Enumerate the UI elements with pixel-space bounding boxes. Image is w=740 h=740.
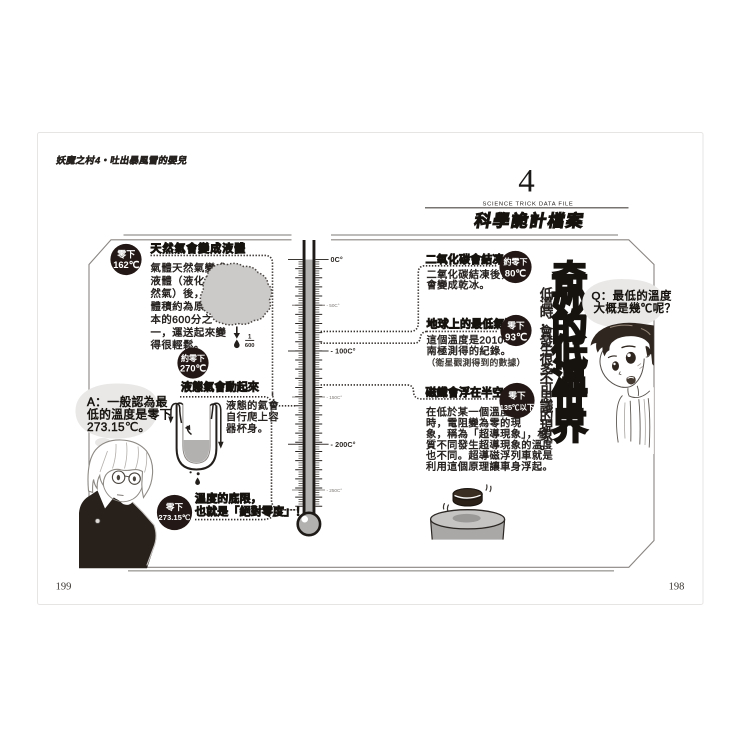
svg-text:在低於某一個溫度: 在低於某一個溫度 (426, 405, 511, 418)
svg-text:SCIENCE TRICK DATA FILE: SCIENCE TRICK DATA FILE (483, 202, 574, 208)
svg-text:198: 198 (669, 582, 685, 593)
svg-text:南極測得的紀錄。: 南極測得的紀錄。 (427, 345, 512, 358)
svg-text:液態的氦會: 液態的氦會 (226, 399, 279, 412)
svg-text:135℃以下: 135℃以下 (500, 403, 535, 412)
svg-text:質不同發生超導現象的溫度: 質不同發生超導現象的溫度 (426, 438, 553, 451)
svg-text:也不同。超導磁浮列車就是: 也不同。超導磁浮列車就是 (426, 449, 553, 462)
svg-text:199: 199 (56, 582, 72, 593)
svg-text:- 150C°: - 150C° (327, 395, 343, 400)
svg-text:象，稱為「超導現象」，材: 象，稱為「超導現象」，材 (426, 427, 548, 440)
svg-text:二氧化碳會結凍: 二氧化碳會結凍 (426, 252, 505, 266)
svg-text:科學詭計檔案: 科學詭計檔案 (473, 211, 586, 231)
svg-text:270℃: 270℃ (180, 363, 206, 373)
svg-text:約零下: 約零下 (504, 257, 528, 267)
svg-text:（衛星觀測得到的數據）: （衛星觀測得到的數據） (427, 357, 526, 368)
svg-text:約零下: 約零下 (181, 353, 205, 363)
svg-text:利用這個原理讓車身浮起。: 利用這個原理讓車身浮起。 (426, 460, 553, 473)
svg-text:零下: 零下 (507, 390, 526, 400)
svg-text:- 50C°: - 50C° (327, 303, 340, 308)
svg-text:二氧化碳結凍後，: 二氧化碳結凍後， (427, 268, 512, 281)
svg-text:93℃: 93℃ (505, 332, 527, 343)
svg-text:273.15℃。: 273.15℃。 (87, 420, 151, 434)
svg-text:162℃: 162℃ (113, 260, 139, 270)
svg-text:0C°: 0C° (331, 255, 343, 264)
svg-text:零下: 零下 (165, 502, 184, 512)
svg-text:零下: 零下 (116, 250, 135, 260)
svg-text:器杯身。: 器杯身。 (226, 422, 268, 435)
svg-text:273.15℃: 273.15℃ (158, 513, 191, 522)
svg-text:妖魔之村4・吐出暴風雪的嬰兒: 妖魔之村4・吐出暴風雪的嬰兒 (56, 155, 189, 166)
svg-text:- 250C°: - 250C° (327, 488, 343, 493)
svg-text:大概是幾℃呢？: 大概是幾℃呢？ (594, 301, 677, 315)
svg-text:體積約為原: 體積約為原 (151, 300, 205, 313)
svg-text:天然氣會變成液體: 天然氣會變成液體 (151, 241, 247, 255)
svg-text:- 200C°: - 200C° (331, 440, 356, 449)
svg-text:80℃: 80℃ (505, 268, 527, 279)
svg-text:時，電阻變為零的現: 時，電阻變為零的現 (426, 416, 521, 429)
svg-text:- 100C°: - 100C° (331, 347, 356, 356)
svg-text:液態氣會動起來: 液態氣會動起來 (181, 380, 259, 394)
svg-text:本的600分之: 本的600分之 (151, 313, 213, 326)
svg-text:一，運送起來變: 一，運送起來變 (151, 326, 227, 339)
svg-text:4: 4 (518, 164, 535, 200)
svg-text:Q：最低的溫度: Q：最低的溫度 (592, 288, 672, 302)
svg-text:會變成乾冰。: 會變成乾冰。 (427, 278, 491, 291)
svg-text:界: 界 (551, 405, 587, 446)
svg-text:零下: 零下 (506, 320, 525, 330)
svg-text:然氣）後，: 然氣）後， (151, 287, 205, 300)
svg-text:。: 。 (540, 437, 554, 452)
svg-text:自行爬上容: 自行爬上容 (226, 410, 279, 423)
svg-text:600: 600 (245, 343, 255, 349)
svg-text:也就是「絕對零度」！: 也就是「絕對零度」！ (195, 504, 307, 518)
svg-text:溫度的底限，: 溫度的底限， (195, 491, 262, 505)
